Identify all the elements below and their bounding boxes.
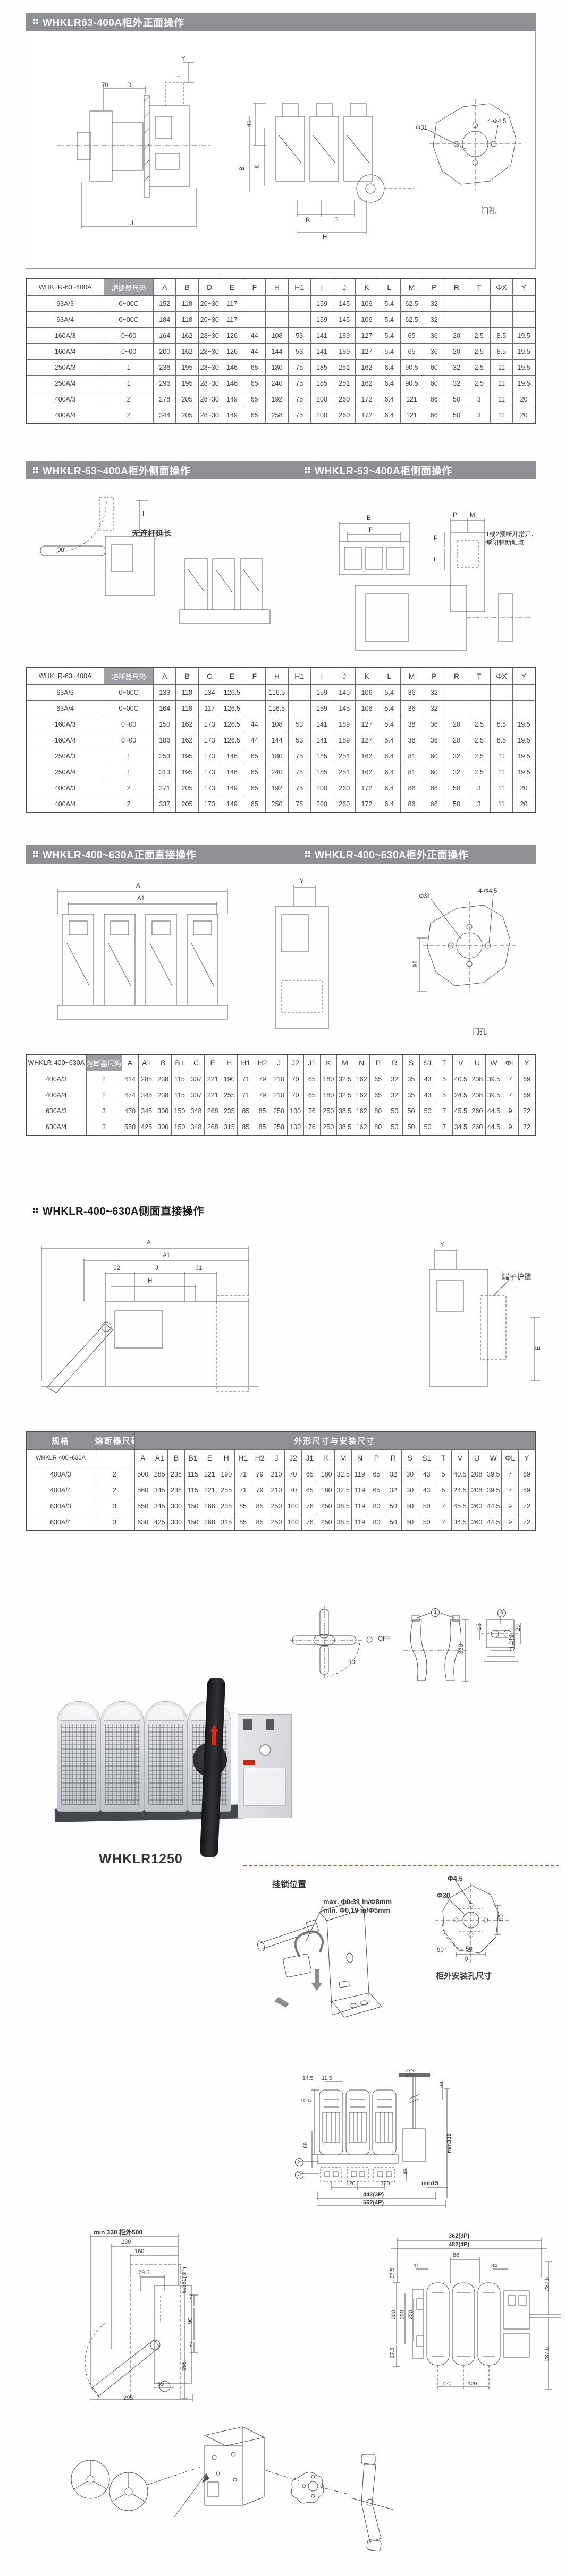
value-cell: 162 [356, 748, 378, 764]
value-cell: 221 [201, 1482, 218, 1498]
value-cell: 250 [318, 1498, 335, 1514]
spec-cell: 63A/4 [26, 312, 104, 328]
value-cell: 144 [266, 732, 288, 748]
drawing-annotations: AA1YΦ314-Φ4.598门孔 [26, 864, 535, 1053]
terminal-shield-note: 端子护罩 [502, 1273, 532, 1281]
value-cell: 65 [368, 1466, 385, 1482]
value-cell: 65 [400, 328, 423, 344]
value-cell: 65 [243, 780, 266, 796]
value-cell: 162 [176, 344, 198, 360]
dimension-label: E [367, 515, 371, 522]
table-header-cell: Y [513, 668, 535, 685]
table-header-cell: ΦL [502, 1450, 518, 1466]
value-cell: 106 [356, 685, 378, 701]
value-cell: 43 [418, 1466, 435, 1482]
value-cell: 2.5 [468, 360, 490, 376]
value-cell: 150 [171, 1119, 188, 1136]
value-cell: 149 [221, 780, 243, 796]
value-cell: 39.5 [485, 1087, 502, 1103]
dimension-label: 4-Φ4.5 [478, 888, 497, 895]
value-cell: 50 [445, 407, 468, 424]
value-cell: 70 [287, 1071, 303, 1087]
value-cell: 115 [171, 1071, 188, 1087]
value-cell: 3 [86, 1103, 122, 1119]
value-cell: 8.5 [490, 732, 512, 748]
table-header-cell: B [176, 279, 198, 296]
drawing-direct-side: AA1J2JJ1HY端子护罩E [26, 1222, 557, 1429]
value-cell: 66 [423, 780, 445, 796]
value-cell: 32 [423, 701, 445, 716]
value-cell: 164 [154, 328, 176, 344]
value-cell: 44.5 [485, 1119, 502, 1136]
table-row: 160A/30~0016416228~301264410853141189127… [26, 328, 535, 344]
value-cell: 8.5 [490, 328, 512, 344]
dimension-label: 120 [346, 2180, 356, 2187]
value-cell [490, 312, 512, 328]
table-header-cell: E [221, 668, 243, 685]
value-cell: 2 [95, 1482, 134, 1498]
value-cell: 36 [423, 328, 445, 344]
value-cell: 2.5 [468, 376, 490, 391]
table-header-cell: WHKLR-63~400A [26, 668, 104, 685]
table-header-cell: H [266, 279, 288, 296]
value-cell: 44 [243, 732, 266, 748]
value-cell: 72 [519, 1119, 535, 1136]
value-cell: 145 [333, 312, 356, 328]
value-cell: 3 [468, 407, 490, 424]
value-cell: 173 [198, 732, 221, 748]
drawing-annotations: 挂锁位置max. Φ0.31 in/Φ8mmmin. Φ0.19 in/Φ5mm [255, 1878, 420, 2032]
value-cell: 255 [221, 1087, 238, 1103]
value-cell: 65 [243, 764, 266, 780]
table-header-cell: V [452, 1450, 468, 1466]
value-cell: 236 [154, 360, 176, 376]
table-header-cell: B1 [184, 1450, 201, 1466]
value-cell: 119 [351, 1482, 368, 1498]
table-header-cell: 熔断器尺码 [104, 668, 154, 685]
value-cell: 195 [176, 360, 198, 376]
value-cell: 5.4 [378, 701, 400, 716]
value-cell: 65 [243, 376, 266, 391]
value-cell: 260 [469, 1103, 485, 1119]
value-cell: 119 [351, 1498, 368, 1514]
table-row: 630A/33550345300150268235858525010076250… [26, 1498, 535, 1514]
table-header-cell: T [468, 668, 490, 685]
dimension-label: 68 [302, 2142, 309, 2148]
value-cell: 253 [154, 748, 176, 764]
fuse-cover [100, 1701, 144, 1812]
value-cell: 5.4 [378, 328, 400, 344]
spec-cell: 400A/4 [26, 407, 104, 424]
value-cell: 44.5 [485, 1514, 502, 1531]
dimension-label: Y [440, 1242, 444, 1249]
value-cell: 3 [95, 1514, 134, 1531]
value-cell: 159 [310, 312, 333, 328]
section-header-side-operation: WHKLR-63~400A柜外侧面操作 WHKLR-63~400A柜侧面操作 [26, 461, 536, 479]
value-cell: 210 [268, 1482, 284, 1498]
value-cell: 65 [303, 1071, 320, 1087]
value-cell: 3 [468, 796, 490, 813]
dimension-label: R [306, 217, 310, 224]
value-cell: 425 [151, 1514, 167, 1531]
table-header-cell: W [485, 1450, 502, 1466]
value-cell: 162 [353, 1119, 370, 1136]
table-header-cell: L [378, 668, 400, 685]
value-cell: 2 [104, 407, 154, 424]
value-cell: 36 [423, 344, 445, 360]
value-cell: 190 [218, 1466, 234, 1482]
value-cell: 127 [356, 732, 378, 748]
value-cell [288, 685, 310, 701]
drawing-side-operation: 90°I无连杆延长EFPMPL1或2预断开常开、常闭辅助触点 [26, 479, 535, 666]
value-cell: 150 [184, 1498, 201, 1514]
table-header-cell: H2 [254, 1054, 271, 1071]
value-cell: 0~00 [104, 328, 154, 344]
dimension-label: 289 [121, 2239, 131, 2246]
value-cell: 260 [333, 391, 356, 407]
value-cell [445, 312, 468, 328]
value-cell: 69 [518, 1482, 535, 1498]
value-cell: 38 [400, 732, 423, 748]
table-header-cell: ΦX [490, 668, 512, 685]
spec-cell: 400A/3 [26, 1466, 95, 1482]
value-cell: 20~30 [198, 296, 221, 312]
dimension-label: I [142, 511, 144, 518]
value-cell: 208 [468, 1466, 485, 1482]
value-cell: 185 [310, 764, 333, 780]
value-cell: 50 [386, 1119, 403, 1136]
value-cell: 208 [469, 1071, 485, 1087]
value-cell [266, 296, 288, 312]
spec-cell: 250A/3 [26, 360, 104, 376]
table-header-cell: E [221, 279, 243, 296]
red-arrow-icon [212, 1731, 216, 1745]
value-cell: 205 [176, 796, 198, 813]
value-cell: 7 [435, 1514, 451, 1531]
dimension-label: 68 [438, 2082, 445, 2088]
value-cell: 44 [243, 328, 266, 344]
value-cell: 117 [198, 701, 221, 716]
value-cell: 238 [168, 1466, 184, 1482]
value-cell: 185 [310, 376, 333, 391]
table-header-cell: H1 [288, 279, 310, 296]
value-cell: 9 [502, 1103, 519, 1119]
table-row: 63A/30~00C15211820~301171591451065.462.5… [26, 296, 535, 312]
table-header-cell: J2 [285, 1450, 301, 1466]
value-cell: 2 [104, 796, 154, 813]
table-header-row: WHKLR-400~630AAA1BB1EHH1H2JJ2J1KMNPRSS1T… [26, 1450, 535, 1466]
spec-cell: 630A/4 [26, 1119, 86, 1136]
value-cell: 70 [285, 1466, 301, 1482]
table-header-cell: L [378, 279, 400, 296]
value-cell: 192 [266, 391, 288, 407]
value-cell: 251 [333, 376, 356, 391]
value-cell [243, 312, 266, 328]
value-cell: 630 [134, 1514, 151, 1531]
table-row: 400A/3227120517314965192752002601726.486… [26, 780, 535, 796]
value-cell [243, 701, 266, 716]
value-cell: 268 [201, 1514, 218, 1531]
value-cell: 19.5 [513, 732, 535, 748]
value-cell: 71 [234, 1466, 251, 1482]
dimension-label: J [130, 220, 133, 227]
value-cell: 474 [122, 1087, 138, 1103]
section-header-front-operation: WHKLR63-400A柜外正面操作 [26, 13, 536, 31]
value-cell: 34.5 [452, 1514, 468, 1531]
table-header-cell: U [469, 1054, 485, 1071]
value-cell: 36 [400, 701, 423, 716]
value-cell: 185 [310, 748, 333, 764]
value-cell: 250 [268, 1498, 284, 1514]
value-cell: 11 [490, 796, 512, 813]
value-cell: 32 [445, 360, 468, 376]
table-header-cell: J [333, 668, 356, 685]
dimension-label: 200 [399, 2310, 406, 2319]
spec-cell: 630A/3 [26, 1103, 86, 1119]
spec-cell: 250A/3 [26, 748, 104, 764]
value-cell: 180 [266, 360, 288, 376]
value-cell: 86 [400, 796, 423, 813]
value-cell: 1 [104, 748, 154, 764]
value-cell [266, 312, 288, 328]
value-cell: 8.5 [490, 716, 512, 732]
value-cell: 65 [370, 1087, 386, 1103]
value-cell: 32 [445, 764, 468, 780]
table-header-cell: M [335, 1450, 351, 1466]
value-cell: 116.5 [266, 685, 288, 701]
catalog-page: WHKLR63-400A柜外正面操作 [0, 0, 565, 2576]
value-cell: 28~30 [198, 344, 221, 360]
value-cell: 35 [403, 1071, 419, 1087]
value-cell: 65 [243, 360, 266, 376]
spec-cell: 160A/3 [26, 716, 104, 732]
spec-cell: 250A/4 [26, 764, 104, 780]
value-cell: 119 [351, 1466, 368, 1482]
value-cell: 40.5 [452, 1071, 469, 1087]
value-cell: 53 [288, 732, 310, 748]
value-cell: 210 [268, 1466, 284, 1482]
value-cell: 50 [402, 1498, 418, 1514]
section-header-direct-front: WHKLR-400~630A正面直接操作 WHKLR-400~630A柜外正面操… [26, 845, 536, 864]
value-cell: 0~00C [104, 701, 154, 716]
value-cell: 115 [171, 1087, 188, 1103]
drawing-annotations: 14.511.510.56823120120442(3P)562(4P)min1… [294, 2068, 456, 2208]
dimension-label: P [434, 535, 438, 542]
value-cell: 300 [155, 1119, 171, 1136]
value-cell: 106 [356, 701, 378, 716]
table-header-cell: H [221, 1054, 238, 1071]
value-cell: 11 [490, 407, 512, 424]
table-header-cell: A [154, 668, 176, 685]
value-cell: 118 [176, 296, 198, 312]
value-cell: 425 [138, 1119, 155, 1136]
value-cell: 32 [385, 1482, 401, 1498]
dimension-label: J [155, 1265, 158, 1272]
value-cell: 126 [221, 328, 243, 344]
value-cell: 30 [402, 1466, 418, 1482]
value-cell: 121 [400, 407, 423, 424]
value-cell: 44 [243, 344, 266, 360]
value-cell: 85 [251, 1514, 268, 1531]
value-cell: 127 [356, 328, 378, 344]
table-header-cell: H [218, 1450, 234, 1466]
value-cell: 162 [353, 1071, 370, 1087]
value-cell: 80 [368, 1514, 385, 1531]
value-cell: 240 [266, 764, 288, 780]
value-cell: 189 [333, 716, 356, 732]
table-header-cell: M [336, 1054, 353, 1071]
fuse-cover [57, 1701, 100, 1812]
technical-drawing-exploded [53, 2418, 489, 2576]
value-cell: 81 [400, 748, 423, 764]
value-cell: 141 [310, 344, 333, 360]
value-cell: 133 [154, 685, 176, 701]
value-cell: 36 [423, 716, 445, 732]
value-cell: 260 [469, 1119, 485, 1136]
value-cell: 173 [198, 748, 221, 764]
value-cell: 2.5 [468, 748, 490, 764]
value-cell: 79 [251, 1466, 268, 1482]
value-cell: 40.5 [452, 1466, 468, 1482]
value-cell: 85 [251, 1498, 268, 1514]
dimension-label: 295 [123, 2395, 133, 2402]
dimension-label: T [177, 76, 181, 83]
value-cell: 75 [288, 748, 310, 764]
value-cell: 72 [518, 1498, 535, 1514]
value-cell: 6.4 [378, 796, 400, 813]
dimension-label: 59 [157, 2381, 164, 2388]
value-cell: 260 [333, 780, 356, 796]
value-cell: 20~30 [198, 312, 221, 328]
table-header-cell: H2 [251, 1450, 268, 1466]
dimension-label: 20 [515, 1624, 522, 1631]
red-divider-line [243, 1865, 559, 1866]
callout-6: 6 [497, 1609, 506, 1617]
table-row: 400A/42560345238115221255717921070651803… [26, 1482, 535, 1498]
dimension-label: 10.5 [300, 2097, 311, 2104]
spec-cell: 160A/4 [26, 732, 104, 748]
dimension-label: 330 [458, 1644, 465, 1654]
value-cell: 164 [154, 701, 176, 716]
value-cell: 141 [310, 328, 333, 344]
value-cell: 184 [154, 312, 176, 328]
value-cell: 500 [134, 1466, 151, 1482]
value-cell: 19.5 [513, 360, 535, 376]
table-row: 63A/40~00C164118117126.5116.51591451065.… [26, 701, 535, 716]
value-cell: 268 [205, 1119, 221, 1136]
value-cell: 20 [445, 328, 468, 344]
value-cell: 300 [168, 1498, 184, 1514]
value-cell: 250 [271, 1103, 287, 1119]
table-header-cell: B1 [171, 1054, 188, 1071]
spec-cell: 63A/3 [26, 296, 104, 312]
table-row: 630A/33470345300150348268235858525010076… [26, 1103, 535, 1119]
value-cell: 149 [221, 407, 243, 424]
value-cell: 172 [356, 407, 378, 424]
table-header-cell: 熔断器尺码 [104, 279, 154, 296]
table-header-cell: C [198, 668, 221, 685]
table-header-cell: K [356, 279, 378, 296]
value-cell: 126 [221, 344, 243, 360]
dimension-label: 90° [57, 547, 66, 554]
value-cell: 145 [333, 701, 356, 716]
value-cell: 3 [468, 780, 490, 796]
value-cell: 192 [266, 780, 288, 796]
value-cell: 32 [385, 1466, 401, 1482]
value-cell: 550 [134, 1498, 151, 1514]
table-header-cell: A1 [138, 1054, 155, 1071]
table-header-cell: P [423, 279, 445, 296]
value-cell: 162 [176, 732, 198, 748]
value-cell: 28~30 [198, 360, 221, 376]
dimension-label: 34 [491, 2263, 497, 2269]
value-cell: 173 [198, 796, 221, 813]
value-cell: 19.5 [513, 748, 535, 764]
value-cell: 307 [188, 1087, 204, 1103]
table-header-cell: T [436, 1054, 452, 1071]
table-header-cell: T [435, 1450, 451, 1466]
value-cell: 221 [205, 1087, 221, 1103]
value-cell: 5 [436, 1087, 452, 1103]
value-cell: 180 [266, 748, 288, 764]
value-cell: 162 [356, 764, 378, 780]
value-cell [243, 296, 266, 312]
value-cell: 152 [154, 296, 176, 312]
value-cell: 162 [176, 716, 198, 732]
dimension-label: min15 [421, 2180, 438, 2187]
dimension-label: 37.5 [389, 2268, 395, 2279]
value-cell: 172 [356, 796, 378, 813]
value-cell: 337 [154, 796, 176, 813]
value-cell: 71 [238, 1087, 254, 1103]
value-cell: 75 [288, 796, 310, 813]
value-cell [445, 701, 468, 716]
value-cell: 38.5 [335, 1514, 351, 1531]
table-header-cell: N [353, 1054, 370, 1071]
dimension-label: Y [181, 56, 185, 63]
value-cell [468, 701, 490, 716]
value-cell: 5 [436, 1071, 452, 1087]
spec-cell: 160A/4 [26, 344, 104, 360]
value-cell: 238 [155, 1071, 171, 1087]
value-cell: 19.5 [513, 764, 535, 780]
value-cell: 210 [271, 1071, 287, 1087]
value-cell: 28~30 [198, 376, 221, 391]
dimension-label: Y [300, 878, 304, 885]
value-cell [490, 296, 512, 312]
table-group-header: 外形尺寸与安装尺寸 [134, 1431, 535, 1450]
value-cell: 5.4 [378, 732, 400, 748]
dimension-label: 355 [181, 2361, 188, 2371]
table-header-cell: A [154, 279, 176, 296]
dimension-label: H [148, 1278, 152, 1285]
drawing-installation-top: 362(3P)482(4P)8837.51134237.530020025037… [366, 2230, 564, 2401]
dimension-label: 237.5 [544, 2347, 550, 2361]
table-header-cell: J [333, 279, 356, 296]
value-cell: 189 [333, 344, 356, 360]
value-cell: 11 [490, 391, 512, 407]
value-cell: 260 [333, 796, 356, 813]
section-title: WHKLR-63~400A柜侧面操作 [315, 463, 452, 477]
table-header-cell: I [310, 668, 333, 685]
value-cell: 195 [176, 764, 198, 780]
table-group-header-row: 规格熔断器尺码外形尺寸与安装尺寸 [26, 1431, 535, 1450]
table-header-row: WHKLR-63~400A熔断器尺码ABCEFHH1IJKLMPRTΦXY [26, 668, 535, 685]
value-cell: 118 [176, 685, 198, 701]
value-cell: 9 [502, 1514, 518, 1531]
value-cell: 6.4 [378, 376, 400, 391]
table-row: 400A/4233720517314965250752002601726.486… [26, 796, 535, 813]
